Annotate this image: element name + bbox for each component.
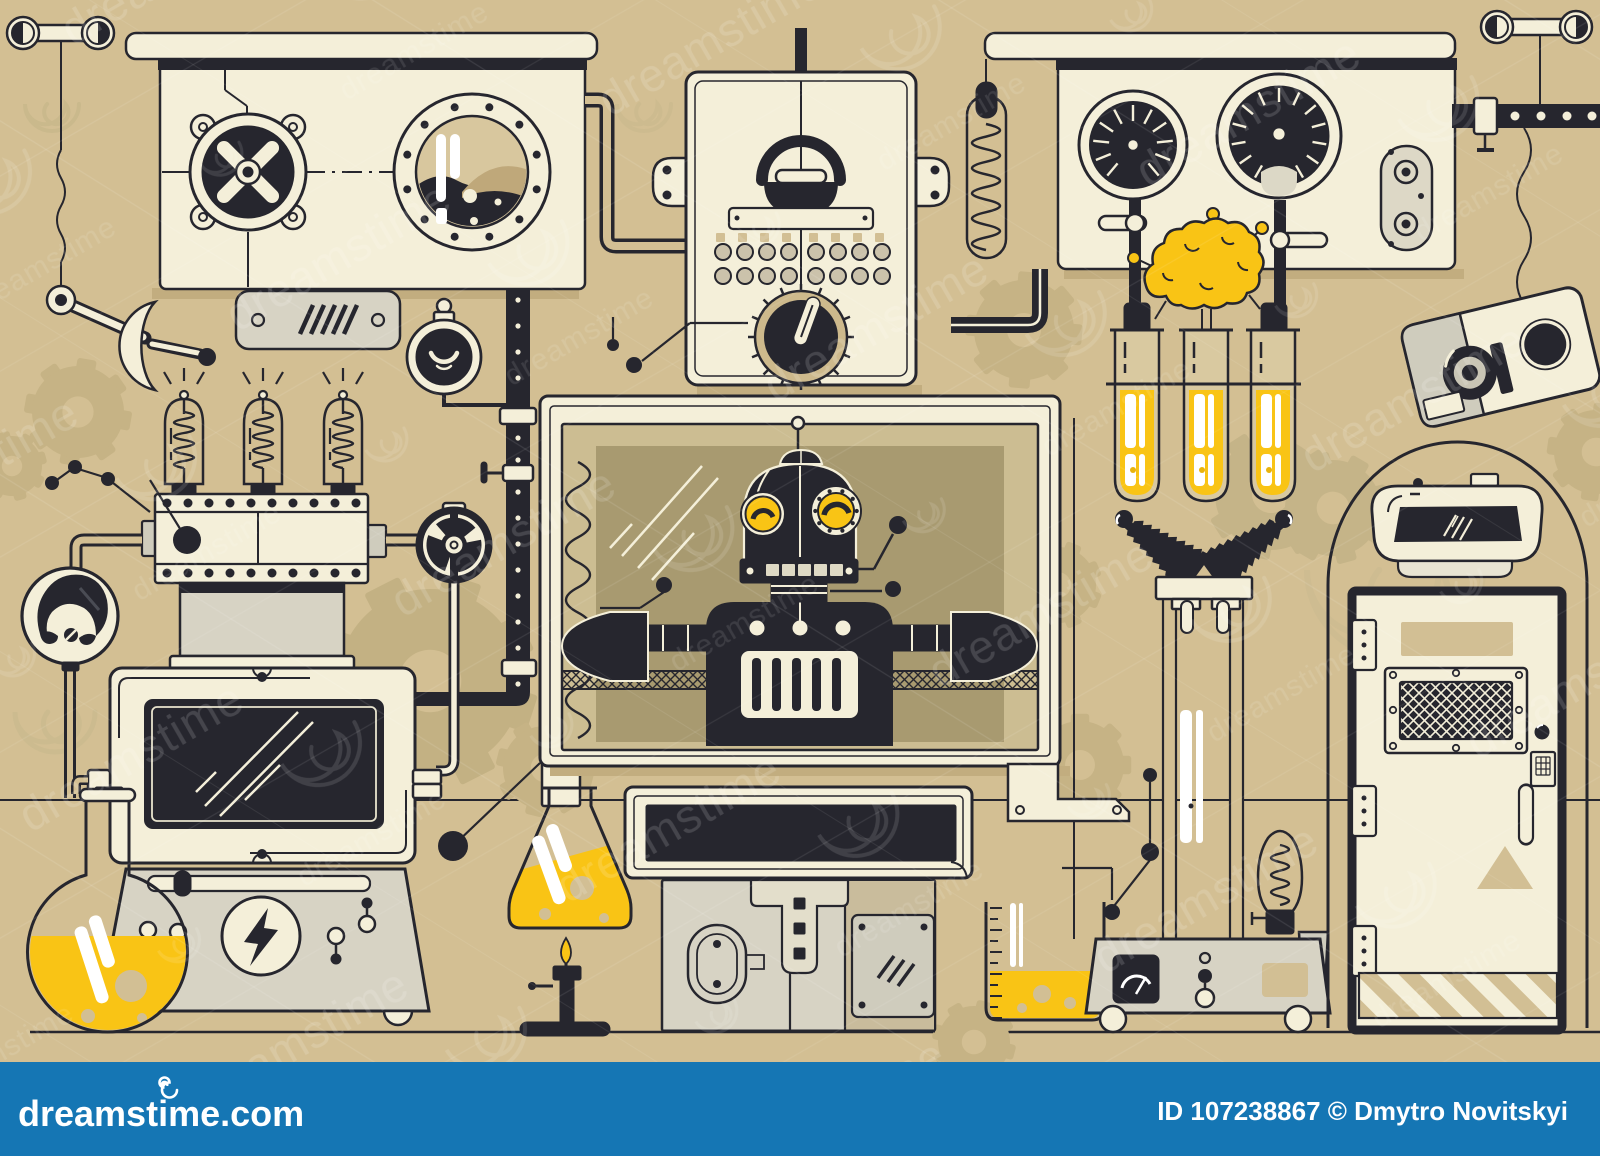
svg-text:ID 107238867 © Dmytro Novitsky: ID 107238867 © Dmytro Novitskyi <box>1157 1096 1568 1126</box>
svg-text:dreamstime.com: dreamstime.com <box>18 1093 304 1134</box>
